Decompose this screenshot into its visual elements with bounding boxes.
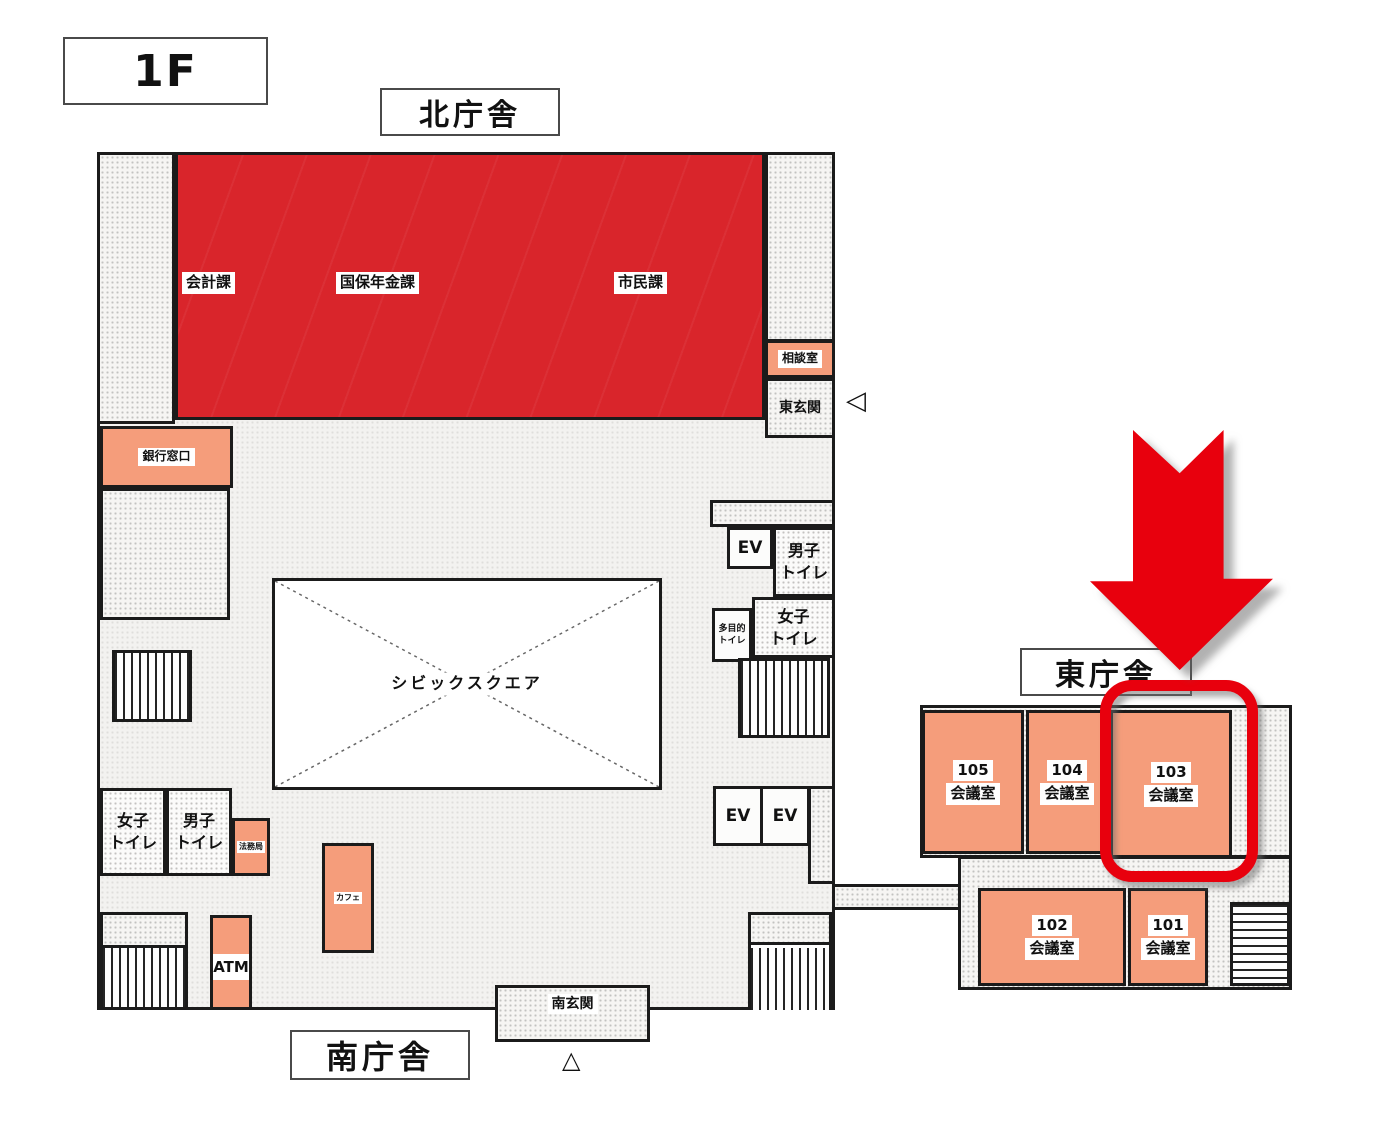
room-103-highlight-ring	[1100, 680, 1258, 882]
east-entrance: 東玄関	[765, 378, 835, 438]
south-entrance-label: 南玄関	[548, 994, 598, 1014]
womens-toilet-core-label: 女子 トイレ	[769, 606, 817, 649]
multipurpose-toilet: 多目的 トイレ	[712, 608, 752, 662]
attention-arrow-icon	[1090, 430, 1273, 670]
west-room	[100, 488, 230, 620]
legal-affairs-label: 法務局	[237, 841, 265, 853]
east-connector-corridor	[832, 884, 962, 910]
floor-plan-1f: 1F 北庁舎 会計課 国保年金課 市民課 相談室 東玄関 ◁ 銀行窓口 シビック…	[0, 0, 1397, 1125]
multipurpose-toilet-label: 多目的 トイレ	[718, 623, 745, 647]
legal-affairs-room: 法務局	[232, 818, 270, 876]
room-105-number: 105	[953, 760, 992, 782]
room-101-type: 会議室	[1141, 938, 1194, 960]
meeting-room-102: 102 会議室	[978, 888, 1126, 986]
elevator-north: EV	[727, 527, 773, 569]
elevator-south-1: EV	[713, 786, 763, 846]
room-accounting: 会計課	[182, 272, 235, 294]
room-101-number: 101	[1148, 915, 1187, 937]
room-102-type: 会議室	[1025, 938, 1078, 960]
cafe-room: カフェ	[322, 843, 374, 953]
south-building-label: 南庁舎	[290, 1030, 470, 1080]
meeting-room-105: 105 会議室	[922, 710, 1024, 854]
south-core-stairs	[751, 948, 829, 1010]
meeting-room-104: 104 会議室	[1026, 710, 1108, 854]
room-105-type: 会議室	[946, 783, 999, 805]
civic-square: シビックスクエア	[272, 578, 662, 790]
department-zone	[175, 152, 765, 420]
consultation-room-label: 相談室	[778, 350, 822, 368]
room-102-number: 102	[1032, 915, 1071, 937]
womens-toilet-southwest: 女子 トイレ	[100, 788, 166, 876]
south-entrance-direction-icon: △	[562, 1046, 580, 1074]
womens-toilet-label: 女子 トイレ	[109, 810, 157, 853]
atm-label: ATM	[213, 954, 249, 980]
east-entrance-label: 東玄関	[779, 399, 821, 418]
civic-square-label: シビックスクエア	[387, 673, 547, 696]
core-stairs	[738, 658, 830, 738]
core-corridor-band	[710, 500, 835, 527]
consultation-room: 相談室	[765, 340, 835, 378]
east-entrance-direction-icon: ◁	[846, 386, 866, 416]
atm-booth: ATM	[210, 915, 252, 1010]
south-core-landing	[751, 915, 829, 945]
south-core-stair-block	[748, 912, 832, 1010]
room-citizen-affairs: 市民課	[614, 272, 667, 294]
south-entrance: 南玄関	[495, 985, 650, 1042]
mens-toilet-southwest: 男子 トイレ	[166, 788, 232, 876]
attention-arrow-shape	[1090, 430, 1273, 670]
mens-toilet-core: 男子 トイレ	[773, 527, 835, 597]
north-west-corridor	[97, 152, 175, 424]
bank-counter: 銀行窓口	[100, 426, 233, 488]
mens-toilet-core-label: 男子 トイレ	[780, 540, 828, 583]
cafe-label: カフェ	[334, 892, 362, 904]
room-104-number: 104	[1047, 760, 1086, 782]
southwest-stairs	[100, 945, 188, 1010]
mens-toilet-label: 男子 トイレ	[175, 810, 223, 853]
room-104-type: 会議室	[1040, 783, 1093, 805]
womens-toilet-core: 女子 トイレ	[752, 597, 835, 658]
southwest-landing	[100, 912, 188, 948]
elevator-south-2-label: EV	[773, 805, 798, 828]
room-insurance-pension: 国保年金課	[336, 272, 419, 294]
meeting-room-101: 101 会議室	[1128, 888, 1208, 986]
elevator-north-label: EV	[738, 537, 763, 560]
north-building-label: 北庁舎	[380, 88, 560, 136]
bank-counter-label: 銀行窓口	[138, 448, 194, 466]
northwest-stairs	[112, 650, 192, 722]
elevator-south-2: EV	[760, 786, 810, 846]
east-wing-stairs	[1230, 902, 1290, 986]
core-east-strip	[808, 786, 835, 884]
north-east-corridor	[765, 152, 835, 342]
elevator-south-1-label: EV	[726, 805, 751, 828]
floor-label: 1F	[63, 37, 268, 105]
